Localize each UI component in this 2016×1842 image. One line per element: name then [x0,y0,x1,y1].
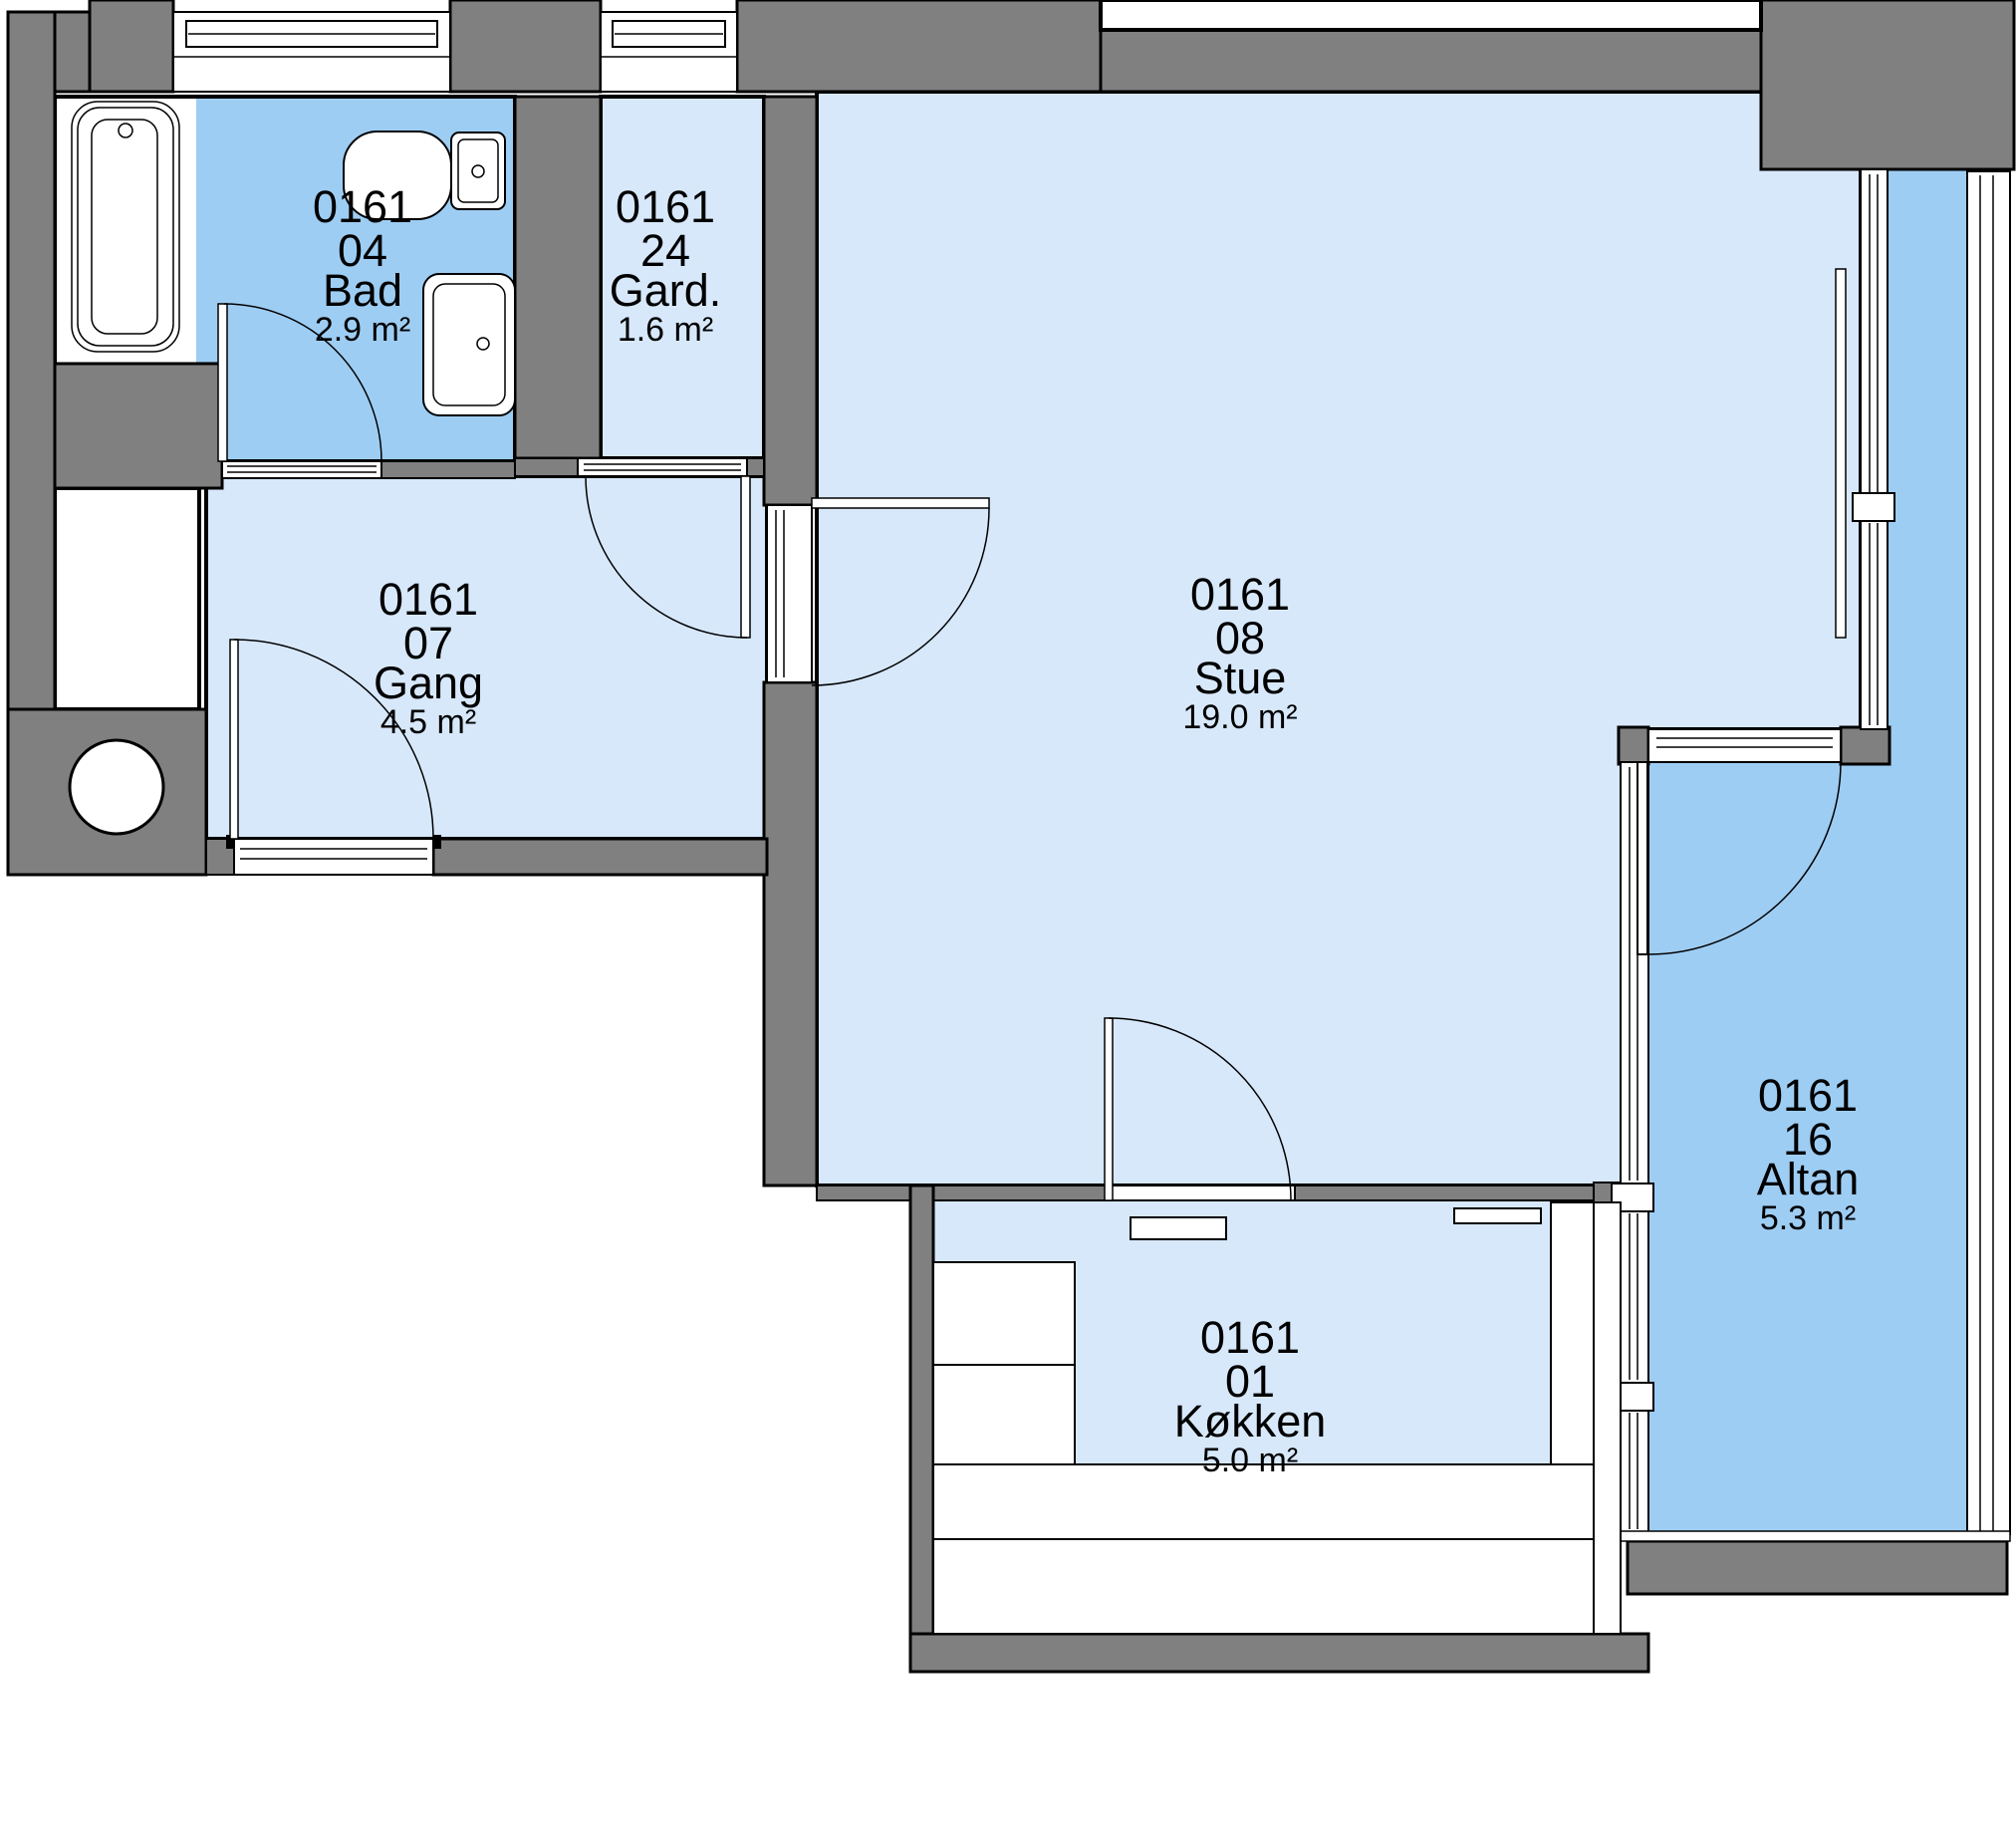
wall-stue-south [817,1185,1109,1200]
sink-drain [477,338,489,350]
room-area: 2.9 m² [315,311,410,349]
door-jamb-mark [433,835,441,849]
room-label-gard: 0161 24 Gard. 1.6 m² [610,181,722,349]
door-leaf [741,476,750,638]
room-label-stue: 0161 08 Stue 19.0 m² [1182,569,1297,736]
wall-koekken-south [910,1634,1648,1672]
toilet-valve [472,165,484,177]
room-label-bad: 0161 04 Bad 2.9 m² [313,181,412,349]
wall-segment [450,0,601,92]
room-name: Stue [1194,653,1287,703]
kitchen-counter-row [933,1539,1594,1634]
wall-segment [381,461,515,478]
wall-gard-stue [764,97,817,505]
room-gang-floor [206,476,767,839]
kitchen-cabinet [933,1365,1075,1464]
wall-west [8,12,55,709]
wall-altan-south [1628,1541,2007,1594]
room-name: Gang [374,658,483,708]
altan-south-sill [1621,1531,2010,1541]
kitchen-counter-piece [1131,1217,1226,1239]
wall-segment [747,458,764,476]
bathtub [72,102,179,352]
room-name: Altan [1757,1154,1860,1204]
wall-stue-west [764,682,817,1185]
sink [423,274,515,415]
room-name: Gard. [610,265,722,316]
door-leaf [1105,1018,1113,1200]
room-area: 19.0 m² [1182,698,1297,736]
wall-segment [737,0,1101,92]
wall-corner-top-right [1761,0,2014,169]
room-area: 5.0 m² [1202,1442,1298,1479]
floor-plan-drawing: 0161 04 Bad 2.9 m² 0161 24 Gard. 1.6 m² … [0,0,2016,1842]
wall-segment [515,458,578,476]
wall-gang-south [433,839,767,875]
room-name: Bad [323,265,402,316]
room-area: 4.5 m² [380,703,476,741]
door-leaf [230,640,238,839]
pipe-shaft-circle [70,740,163,834]
room-label-altan: 0161 16 Altan 5.3 m² [1757,1070,1860,1237]
wall-koekken-west [910,1185,933,1669]
kitchen-counter-piece [1454,1208,1541,1223]
window-gard [601,12,737,92]
shaft [55,488,199,709]
door-leaf [218,304,227,461]
room-label-gang: 0161 07 Gang 4.5 m² [374,574,483,741]
facade-recess [1101,0,1761,30]
altan-outer-glazing [1967,171,2010,1534]
kitchen-cabinet [933,1262,1075,1365]
room-area: 5.3 m² [1760,1199,1856,1237]
tub-drain [119,124,132,137]
window-bad [173,12,450,92]
floor-plan: 0161 04 Bad 2.9 m² 0161 24 Gard. 1.6 m² … [0,0,2016,1842]
wall-bad-gard [515,97,601,458]
wall-segment [1101,30,1761,92]
kitchen-side-shaft [1594,1202,1621,1634]
door-leaf [1638,762,1647,954]
balcony-door-jamb-left [1619,727,1648,764]
room-name: Køkken [1174,1396,1327,1447]
room-area: 1.6 m² [618,311,713,349]
wall-segment [55,364,222,488]
open-window-leaf [1836,269,1846,638]
balcony-door-jamb-right [1841,727,1890,764]
door-leaf [812,498,989,508]
wall-stue-south [1295,1185,1621,1200]
wall-segment [90,0,173,92]
